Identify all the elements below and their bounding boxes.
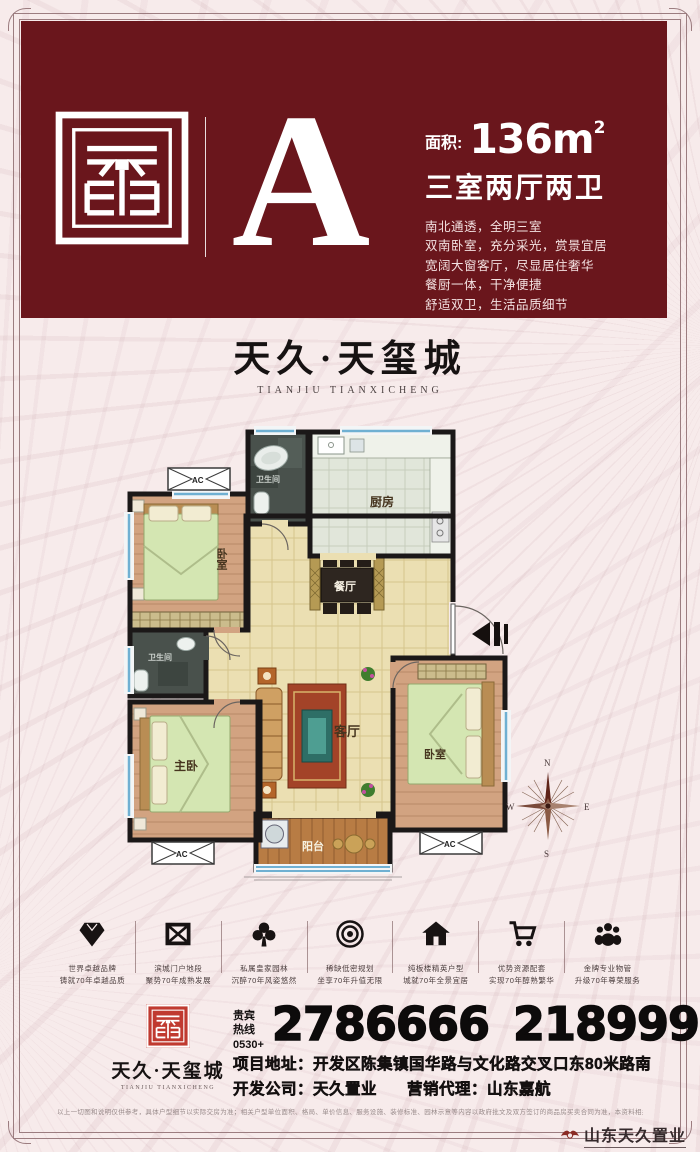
feature-caption: 世界卓越品牌 [50, 963, 135, 975]
feature-item: 私属皇家园林沉醉70年风姿悠然 [222, 915, 307, 987]
feature-divider [221, 921, 222, 973]
bedroom-se-room: 卧室 [393, 658, 505, 830]
developer-value: 天久置业 [313, 1081, 377, 1098]
feature-divider [478, 921, 479, 973]
diamond-icon [77, 919, 107, 949]
feature-caption: 稀缺低密规划 [308, 963, 393, 975]
address-label: 项目地址： [233, 1056, 313, 1073]
feature-caption: 城就70年全景宜居 [393, 975, 478, 987]
room-label-master: 主卧 [174, 758, 198, 773]
room-label-living: 客厅 [334, 724, 360, 739]
ac-unit: AC [152, 842, 214, 864]
feature-caption: 铸就70年卓越品质 [50, 975, 135, 987]
floor-plan: 厨房 卫生间 卧室 [118, 416, 598, 884]
brand-title-en: TIANJIU TIANXICHENG [0, 385, 700, 396]
feature-divider [307, 921, 308, 973]
feature-caption: 滨城门户地段 [136, 963, 221, 975]
feature-item: 优势资源配套实现70年醇熟繁华 [479, 915, 564, 987]
house-icon [421, 919, 451, 949]
address-line: 项目地址：开发区陈集镇国华路与文化路交叉口东80米路南 [233, 1053, 651, 1078]
bedroom-nw-room: 卧室 [130, 494, 248, 630]
kitchen-room: 厨房 [310, 432, 453, 556]
feature-caption: 沉醉70年风姿悠然 [222, 975, 307, 987]
feature-item: 纯板楼精英户型城就70年全景宜居 [393, 915, 478, 987]
unit-letter: A [221, 85, 381, 277]
unit-description: 南北通透，全明三室 双南卧室，充分采光，赏景宜居 宽阔大窗客厅，尽显居住奢华 餐… [425, 218, 667, 315]
address-block: 项目地址：开发区陈集镇国华路与文化路交叉口东80米路南 开发公司：天久置业营销代… [233, 1053, 651, 1103]
feature-caption: 聚势70年成熟发展 [136, 975, 221, 987]
developer-label: 开发公司： [233, 1081, 313, 1098]
room-label-bath-mid: 卫生间 [148, 652, 172, 662]
feature-caption: 私属皇家园林 [222, 963, 307, 975]
entry-arrow-icon [472, 622, 508, 646]
contact-brand-name-en: TIANJIU TIANXICHENG [103, 1085, 233, 1091]
desc-line: 舒适双卫，生活品质细节 [425, 296, 667, 315]
feature-divider [392, 921, 393, 973]
feature-item: 世界卓越品牌铸就70年卓越品质 [50, 915, 135, 987]
feature-caption: 纯板楼精英户型 [393, 963, 478, 975]
feature-item: 金牌专业物管升级70年尊荣服务 [565, 915, 650, 987]
header-banner: A 面积: 136m2 三室两厅两卫 南北通透，全明三室 双南卧室，充分采光，赏… [21, 21, 667, 318]
brand-title: 天久·天玺城 [0, 328, 700, 382]
svg-text:E: E [584, 802, 590, 812]
team-icon [593, 919, 623, 949]
svg-text:AC: AC [176, 850, 188, 859]
phone-numbers: 2786666 2189999 [272, 1001, 700, 1047]
feature-caption: 坐享70年升值无限 [308, 975, 393, 987]
area-row: 面积: 136m2 [425, 119, 667, 160]
swallow-icon [560, 1126, 580, 1144]
area-superscript: 2 [594, 118, 606, 138]
developer-seal-icon [55, 111, 189, 245]
agent-value: 山东嘉航 [487, 1081, 551, 1098]
address-value: 开发区陈集镇国华路与文化路交叉口东80米路南 [313, 1056, 651, 1073]
area-label: 面积: [425, 129, 462, 160]
feature-caption: 实现70年醇熟繁华 [479, 975, 564, 987]
bathroom-mid-room: 卫生间 [130, 630, 206, 696]
unit-summary: 面积: 136m2 三室两厅两卫 南北通透，全明三室 双南卧室，充分采光，赏景宜… [425, 119, 667, 315]
balcony-room: 阳台 [256, 814, 390, 870]
phone-number-2: 2189999 [513, 1001, 700, 1047]
svg-text:S: S [544, 849, 549, 859]
feature-caption: 优势资源配套 [479, 963, 564, 975]
disclaimer-text: 以上一切图和说明仅供参考，具体户型细节以实际交房为准；相关户型单位面积、格局、单… [57, 1106, 643, 1116]
master-bedroom-room: 主卧 [130, 702, 260, 840]
contact-brand-block: 天久·天玺城 TIANJIU TIANXICHENG [103, 1004, 233, 1091]
poster: A 面积: 136m2 三室两厅两卫 南北通透，全明三室 双南卧室，充分采光，赏… [0, 0, 700, 1152]
clover-icon [249, 919, 279, 949]
contact-brand-name: 天久·天玺城 [103, 1056, 233, 1083]
feature-item: 稀缺低密规划坐享70年升值无限 [308, 915, 393, 987]
frame-corner-ornament [669, 8, 692, 31]
hotline-prefix: 0530+ [233, 1038, 264, 1052]
area-value: 136m2 [469, 119, 605, 160]
hotline-block: 贵宾热线 0530+ 2786666 2189999 [233, 1001, 700, 1052]
brand-block: 天久·天玺城 TIANJIU TIANXICHENG [0, 328, 700, 396]
room-label-balcony: 阳台 [302, 839, 324, 853]
brand-seal-icon [146, 1004, 190, 1048]
room-label-dining: 餐厅 [333, 579, 356, 593]
room-label-bedroom-se: 卧室 [424, 747, 446, 761]
hotline-label: 贵宾热线 0530+ [233, 1001, 264, 1052]
room-label-bath-top: 卫生间 [256, 474, 280, 484]
feature-item: 滨城门户地段聚势70年成熟发展 [136, 915, 221, 987]
corner-brand: 山东天久置业 [560, 1122, 686, 1148]
frame-corner-ornament [8, 1121, 31, 1144]
header-divider [205, 117, 206, 257]
feature-divider [564, 921, 565, 973]
corner-brand-text: 山东天久置业 [584, 1122, 686, 1148]
feature-caption: 金牌专业物管 [565, 963, 650, 975]
feature-caption: 升级70年尊荣服务 [565, 975, 650, 987]
agent-label: 营销代理： [407, 1081, 487, 1098]
room-label-kitchen: 厨房 [370, 494, 394, 509]
room-label-bedroom-nw: 卧室 [215, 548, 228, 570]
svg-text:N: N [544, 758, 551, 768]
bathroom-top-room: 卫生间 [248, 432, 308, 524]
desc-line: 双南卧室，充分采光，赏景宜居 [425, 237, 667, 256]
ac-unit: AC [168, 468, 230, 490]
phone-number-1: 2786666 [272, 1001, 489, 1047]
svg-text:AC: AC [444, 840, 456, 849]
unit-type-title: 三室两厅两卫 [425, 166, 667, 206]
feature-divider [135, 921, 136, 973]
ac-unit: AC [420, 832, 482, 854]
feature-row: 世界卓越品牌铸就70年卓越品质 滨城门户地段聚势70年成熟发展 私属皇家园林沉醉… [50, 915, 650, 987]
svg-text:AC: AC [192, 476, 204, 485]
rings-icon [335, 919, 365, 949]
company-line: 开发公司：天久置业营销代理：山东嘉航 [233, 1078, 651, 1103]
svg-text:W: W [506, 802, 515, 812]
envelope-icon [163, 919, 193, 949]
compass-icon: N E S W [506, 758, 590, 859]
desc-line: 宽阔大窗客厅，尽显居住奢华 [425, 257, 667, 276]
cart-icon [507, 919, 537, 949]
desc-line: 南北通透，全明三室 [425, 218, 667, 237]
desc-line: 餐厨一体，干净便捷 [425, 276, 667, 295]
